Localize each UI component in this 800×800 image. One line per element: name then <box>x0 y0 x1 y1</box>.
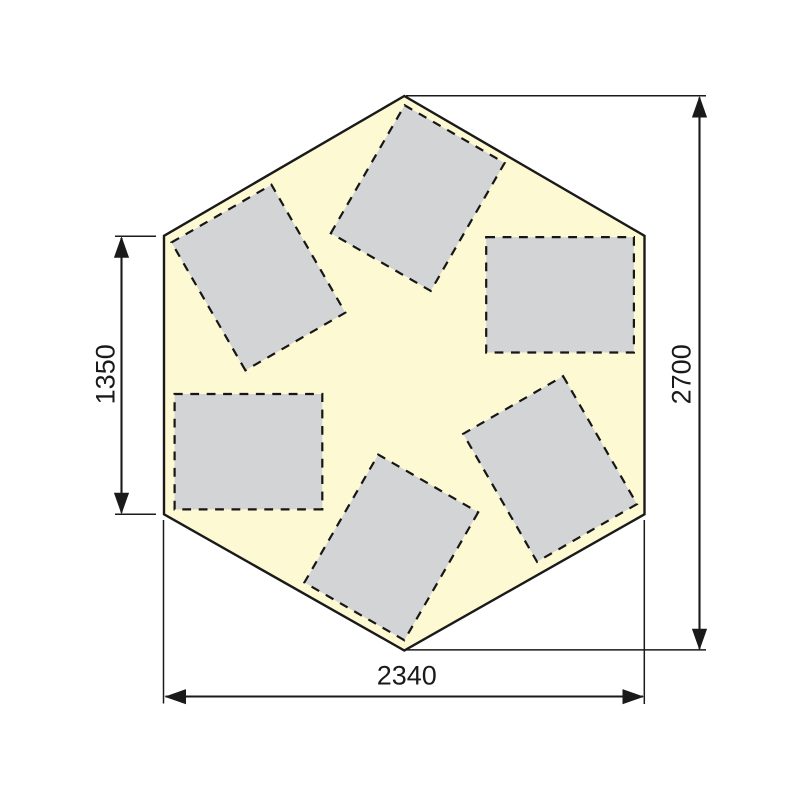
svg-text:2340: 2340 <box>377 661 437 691</box>
svg-text:2700: 2700 <box>666 344 696 404</box>
svg-text:1350: 1350 <box>91 344 121 404</box>
